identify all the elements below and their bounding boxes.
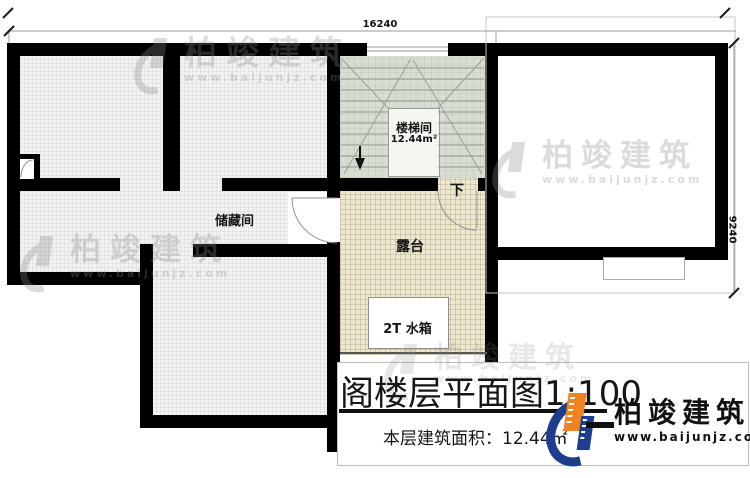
exterior-area-bottom-left [0, 285, 140, 470]
storage-room-label: 储藏间 [192, 210, 277, 229]
watermark-brand: 柏竣建筑 [542, 140, 702, 173]
roof-box [603, 257, 685, 280]
watermark-url: www.baijunjz.com [70, 267, 230, 280]
stairwell-area-label: 12.44m² [383, 134, 445, 145]
watermark: 柏竣建筑 www.baijunjz.com [136, 36, 352, 88]
wall-left [7, 43, 20, 285]
watermark-logo-icon [22, 234, 62, 286]
watermark: 柏竣建筑 www.baijunjz.com [22, 234, 230, 286]
brand-logo: 柏竣建筑 www.baijunjz.com [546, 390, 750, 460]
watermark-brand: 柏竣建筑 [70, 234, 230, 267]
watermark-url: www.baijunjz.com [542, 173, 702, 186]
watermark: 柏竣建筑 www.baijunjz.com [494, 140, 702, 192]
niche-box [20, 159, 35, 179]
watermark-logo-icon [494, 140, 534, 192]
wall-interior-1a [7, 178, 120, 191]
brand-logo-icon [546, 390, 612, 460]
wall-bottom-center [140, 415, 340, 428]
watermark-logo-icon [136, 36, 176, 88]
dimension-right-label: 9240 [726, 216, 737, 244]
wall-interior-1b [222, 178, 340, 191]
niche-frame-right [34, 154, 40, 179]
stair-down-label: 下 [446, 180, 468, 200]
floor-area-text: 本层建筑面积：12.44㎡ [383, 424, 568, 449]
brand-url: www.baijunjz.com [614, 430, 750, 444]
wall-stair-east [485, 43, 498, 362]
dimension-top-label: 16240 [345, 19, 415, 30]
watermark-url: www.baijunjz.com [184, 71, 352, 84]
floor-plan-page: { "colors": { "wall": "#000000", "stair_… [0, 0, 750, 468]
brand-name: 柏竣建筑 [614, 396, 750, 430]
logo-dash [586, 422, 614, 428]
door-swing-area [288, 192, 327, 244]
water-tank-label: 2T 水箱 [360, 318, 455, 337]
top-window [367, 43, 448, 56]
wall-stair-south-a [340, 178, 438, 191]
watermark-brand: 柏竣建筑 [184, 36, 352, 71]
terrace-label: 露台 [379, 236, 441, 256]
